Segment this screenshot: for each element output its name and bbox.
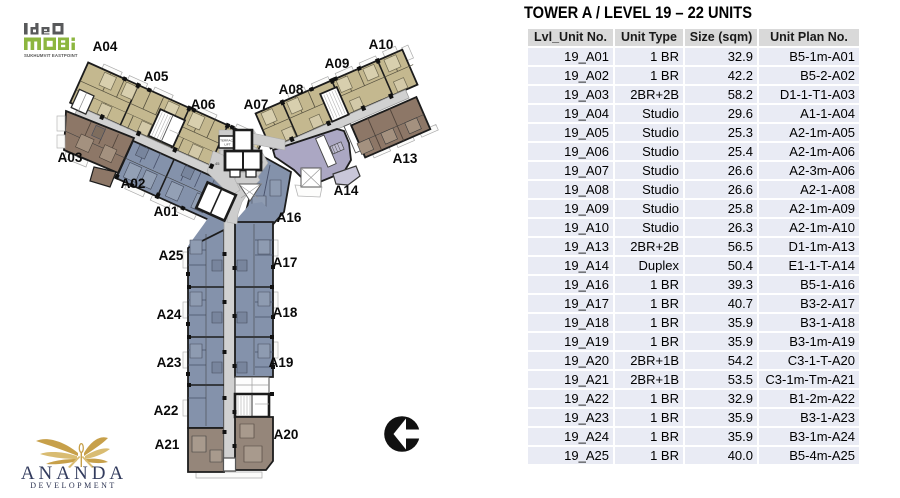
svg-text:A02: A02 (121, 176, 146, 191)
svg-text:A07: A07 (244, 97, 269, 112)
svg-text:A05: A05 (144, 69, 169, 84)
svg-text:A10: A10 (369, 37, 394, 52)
svg-text:A21: A21 (155, 437, 180, 452)
svg-text:A06: A06 (191, 97, 216, 112)
svg-text:A14: A14 (334, 183, 359, 198)
svg-text:A01: A01 (154, 204, 179, 219)
svg-text:A09: A09 (325, 56, 350, 71)
svg-text:DEVELOPMENT: DEVELOPMENT (30, 481, 117, 490)
svg-text:45: 45 (215, 161, 220, 166)
svg-text:A13: A13 (393, 151, 418, 166)
svg-text:SUKHUMVIT EASTPOINT: SUKHUMVIT EASTPOINT (24, 53, 78, 58)
svg-text:A19: A19 (269, 355, 294, 370)
svg-text:A22: A22 (154, 403, 179, 418)
svg-text:A04: A04 (93, 39, 118, 54)
svg-text:A20: A20 (274, 427, 299, 442)
svg-text:LIFT: LIFT (224, 142, 230, 146)
svg-text:A17: A17 (273, 255, 298, 270)
svg-text:A23: A23 (157, 355, 182, 370)
svg-text:A16: A16 (277, 210, 302, 225)
svg-text:A25: A25 (159, 248, 184, 263)
svg-text:A03: A03 (58, 150, 83, 165)
svg-text:A24: A24 (157, 307, 182, 322)
svg-text:A18: A18 (273, 305, 298, 320)
svg-text:A08: A08 (279, 82, 304, 97)
